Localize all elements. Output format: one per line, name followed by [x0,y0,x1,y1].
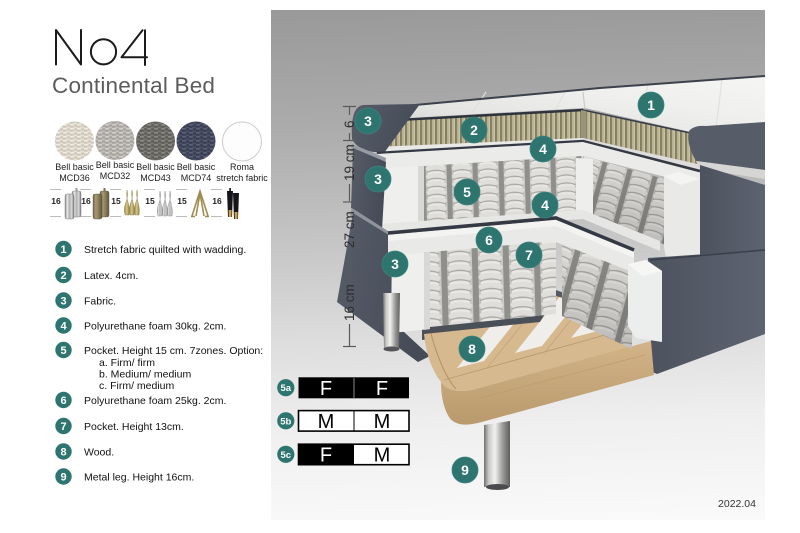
svg-text:6: 6 [485,232,493,248]
svg-text:3: 3 [364,113,372,129]
svg-text:27 cm: 27 cm [342,211,357,248]
svg-text:5: 5 [463,184,471,200]
svg-text:19 cm: 19 cm [342,144,357,181]
svg-text:3: 3 [374,171,382,187]
svg-text:9: 9 [461,462,469,478]
svg-text:4: 4 [541,197,549,213]
svg-text:7: 7 [525,247,533,263]
svg-text:8: 8 [468,341,476,357]
svg-text:2: 2 [470,122,478,138]
svg-text:3: 3 [391,256,399,272]
svg-text:16 cm: 16 cm [342,284,357,321]
svg-text:1: 1 [647,97,655,113]
svg-text:4: 4 [539,141,547,157]
svg-text:2022.04: 2022.04 [718,498,756,510]
